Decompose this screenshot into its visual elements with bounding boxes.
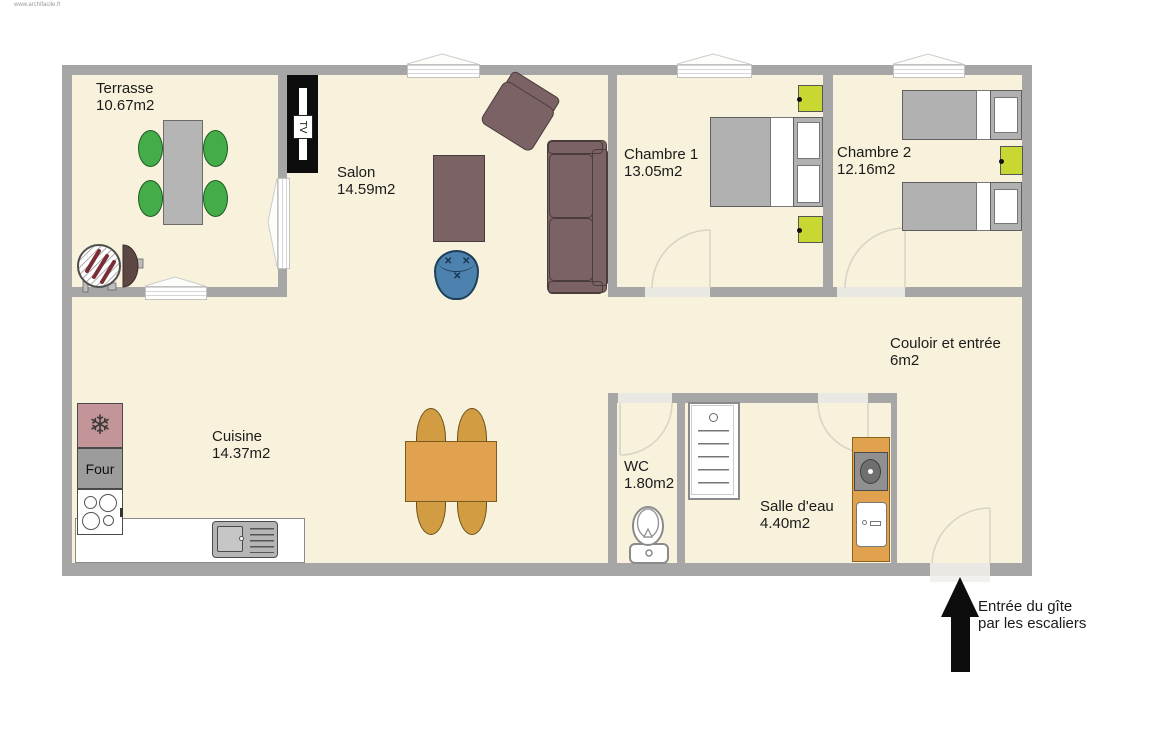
door-opening-chambre1	[645, 287, 710, 297]
burner	[99, 494, 117, 512]
nightstand-knob	[797, 228, 802, 233]
pillow	[994, 189, 1018, 224]
washing-machine-handle	[870, 521, 881, 526]
pillow	[994, 97, 1018, 133]
stitch-icon: ✕	[444, 257, 452, 267]
watermark: www.archifacile.fr	[14, 2, 61, 8]
window-peak-chambre2	[893, 54, 963, 64]
sofa-cushion	[549, 154, 593, 218]
window-salon	[407, 64, 480, 78]
wall-wc-salledeau	[677, 403, 685, 563]
washing-machine-knob	[862, 520, 867, 525]
room-area: 14.37m2	[212, 445, 270, 462]
pillow	[797, 122, 820, 159]
terrace-chair	[203, 130, 228, 167]
room-area: 1.80m2	[624, 475, 674, 492]
sofa-cushion	[549, 218, 593, 281]
room-name: WC	[624, 458, 674, 475]
double-bed-mattress	[710, 117, 771, 207]
window-terrasse-east	[277, 178, 290, 269]
room-area: 14.59m2	[337, 181, 395, 198]
room-name: Salon	[337, 164, 395, 181]
oven-label: Four	[86, 461, 115, 477]
entrance-note-line2: par les escaliers	[978, 615, 1086, 632]
room-area: 6m2	[890, 352, 1001, 369]
nightstand-knob	[999, 159, 1004, 164]
floor-plan: www.archifacile.fr	[0, 0, 1152, 743]
room-name: Cuisine	[212, 428, 270, 445]
washing-machine	[856, 502, 887, 547]
stitch-icon: ✕	[453, 272, 461, 282]
room-area: 13.05m2	[624, 163, 698, 180]
single-bed-mattress	[902, 90, 977, 140]
fridge: ❄	[77, 403, 123, 448]
tv-cabinet: TV	[287, 75, 318, 173]
vanity-unit	[852, 437, 890, 562]
terrace-chair	[203, 180, 228, 217]
wall-outer-bottom	[62, 563, 1032, 576]
wall-outer-left	[62, 65, 72, 576]
room-label-chambre1: Chambre 1 13.05m2	[624, 146, 698, 180]
room-label-salle-deau: Salle d'eau 4.40m2	[760, 498, 834, 532]
kitchen-sink	[212, 521, 278, 558]
terrace-chair	[138, 130, 163, 167]
wall-outer-right	[1022, 65, 1032, 576]
sofa-backrest	[592, 149, 608, 286]
entrance-note-line1: Entrée du gîte	[978, 598, 1086, 615]
room-area: 10.67m2	[96, 97, 154, 114]
room-label-wc: WC 1.80m2	[624, 458, 674, 492]
room-name: Chambre 1	[624, 146, 698, 163]
window-peak-salon	[407, 54, 478, 64]
entrance-arrow-icon	[941, 577, 979, 617]
room-label-chambre2: Chambre 2 12.16m2	[837, 144, 911, 178]
door-opening-chambre2	[837, 287, 905, 297]
window-terrasse-south	[145, 286, 207, 300]
shower-drain	[709, 413, 718, 422]
wall-salon-chambre1	[608, 65, 617, 297]
window-peak-chambre1	[677, 54, 750, 64]
nightstand	[798, 85, 823, 112]
wall-salledeau-couloir	[891, 403, 897, 563]
double-bed-sheet	[770, 117, 794, 207]
single-bed-mattress	[902, 182, 977, 231]
room-name: Couloir et entrée	[890, 335, 1001, 352]
terrace-table	[163, 120, 203, 225]
door-opening-wc	[618, 393, 672, 403]
wall-wc-left	[608, 393, 617, 563]
burner	[84, 496, 97, 509]
nightstand	[798, 216, 823, 243]
freezer-snowflake-icon: ❄	[89, 410, 112, 441]
burner	[103, 515, 114, 526]
entrance-note: Entrée du gîte par les escaliers	[978, 598, 1086, 632]
room-label-cuisine: Cuisine 14.37m2	[212, 428, 270, 462]
stitch-icon: ✕	[462, 257, 470, 267]
sink-faucet	[239, 536, 244, 541]
sofa	[547, 140, 607, 293]
wall-outer-top	[62, 65, 1032, 75]
entrance-arrow-shaft	[951, 615, 970, 672]
kitchen-table	[405, 441, 497, 502]
room-area: 12.16m2	[837, 161, 911, 178]
washbasin-drain	[868, 469, 873, 474]
room-label-terrasse: Terrasse 10.67m2	[96, 80, 154, 114]
window-chambre2	[893, 64, 965, 78]
room-label-couloir: Couloir et entrée 6m2	[890, 335, 1001, 369]
nightstand	[1000, 146, 1023, 175]
cooktop	[77, 489, 123, 535]
room-name: Chambre 2	[837, 144, 911, 161]
pillow	[797, 165, 820, 203]
cooktop-knob	[120, 508, 123, 517]
window-chambre1	[677, 64, 752, 78]
room-name: Salle d'eau	[760, 498, 834, 515]
sink-drainer	[250, 528, 274, 553]
coffee-table	[433, 155, 485, 242]
wall-chambre1-chambre2	[823, 65, 833, 297]
door-opening-salledeau	[818, 393, 868, 403]
oven: Four	[77, 448, 123, 489]
door-opening-entrance	[930, 563, 990, 576]
nightstand-knob	[797, 97, 802, 102]
room-label-salon: Salon 14.59m2	[337, 164, 395, 198]
burner	[82, 512, 100, 530]
room-area: 4.40m2	[760, 515, 834, 532]
tv-label: TV	[293, 115, 313, 139]
room-name: Terrasse	[96, 80, 154, 97]
shower	[688, 402, 740, 500]
shower-lines	[698, 430, 729, 490]
terrace-chair	[138, 180, 163, 217]
